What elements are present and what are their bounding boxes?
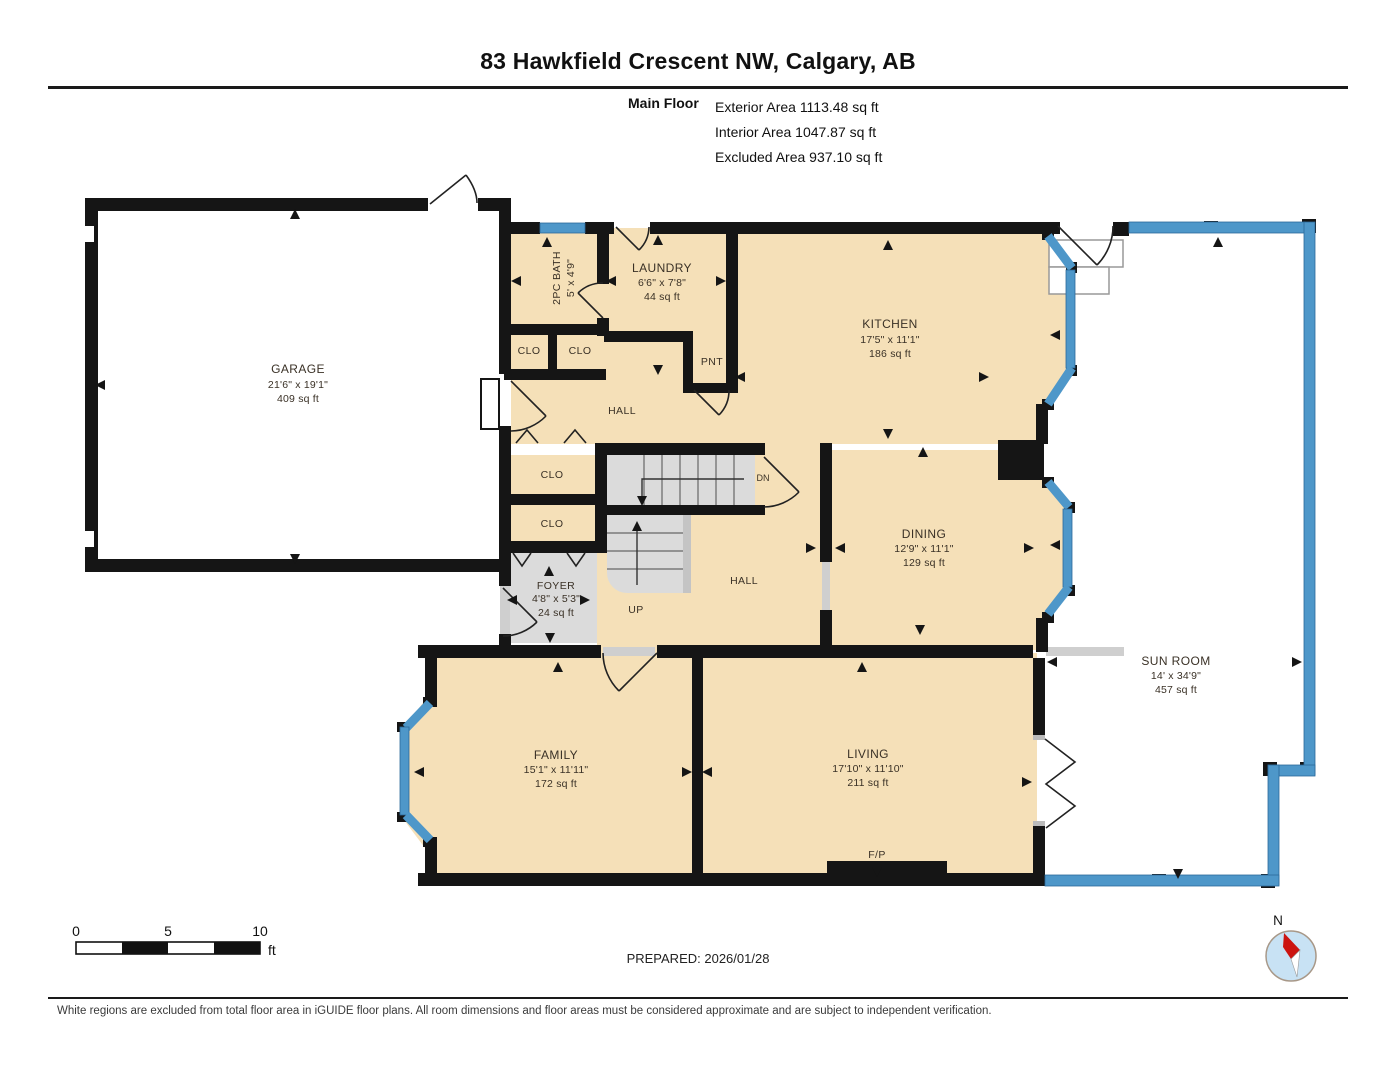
hall-upper-label: HALL <box>608 405 636 417</box>
kitchen-label: KITCHEN 17'5" x 11'1" 186 sq ft <box>860 317 919 360</box>
kitchen-bay-window <box>1066 270 1075 368</box>
sunroom-window-right <box>1304 222 1315 775</box>
sunroom-window-step-v <box>1268 765 1279 885</box>
svg-text:FOYER: FOYER <box>537 580 575 592</box>
svg-text:12'9" x 11'1": 12'9" x 11'1" <box>894 543 953 555</box>
svg-text:172 sq ft: 172 sq ft <box>535 778 577 790</box>
closet3-label: CLO <box>541 469 564 481</box>
garage-label: GARAGE 21'6" x 19'1" 409 sq ft <box>268 362 328 405</box>
svg-text:17'5" x 11'1": 17'5" x 11'1" <box>860 334 919 346</box>
sunroom-window-bottom <box>1045 875 1279 886</box>
dining-label: DINING 12'9" x 11'1" 129 sq ft <box>894 527 953 569</box>
foyer-label: FOYER 4'8" x 5'3" 24 sq ft <box>532 580 580 619</box>
svg-text:186 sq ft: 186 sq ft <box>869 348 911 360</box>
svg-text:DINING: DINING <box>902 527 946 541</box>
floor-plan-svg: GARAGE 21'6" x 19'1" 409 sq ft 2PC BATH … <box>0 0 1396 1080</box>
svg-text:4'8" x 5'3": 4'8" x 5'3" <box>532 593 580 605</box>
svg-text:LAUNDRY: LAUNDRY <box>632 261 692 275</box>
french-doors <box>1045 739 1075 828</box>
pantry-label: PNT <box>701 356 723 368</box>
svg-text:6'6" x 7'8": 6'6" x 7'8" <box>638 277 686 289</box>
svg-text:17'10" x 11'10": 17'10" x 11'10" <box>832 763 904 775</box>
bath-window <box>540 223 585 233</box>
dining-bay-window <box>1063 509 1072 587</box>
scale-tick-5: 5 <box>164 923 172 939</box>
closet1-label: CLO <box>518 345 541 357</box>
svg-text:2PC BATH: 2PC BATH <box>551 251 563 305</box>
fireplace-label: F/P <box>868 849 886 861</box>
prepared-date: PREPARED: 2026/01/28 <box>0 951 1396 966</box>
sunroom-window-top <box>1129 222 1305 233</box>
hall-lower-label: HALL <box>730 575 758 587</box>
compass-north-label: N <box>1273 913 1283 928</box>
svg-text:21'6" x 19'1": 21'6" x 19'1" <box>268 379 328 391</box>
family-bay-window <box>400 727 409 815</box>
svg-text:LIVING: LIVING <box>847 747 889 761</box>
svg-text:211 sq ft: 211 sq ft <box>847 777 888 789</box>
garage-overhead-door <box>430 175 477 204</box>
compass-rose: N <box>1266 913 1316 981</box>
svg-text:14' x 34'9": 14' x 34'9" <box>1151 670 1201 682</box>
svg-text:44 sq ft: 44 sq ft <box>644 291 680 303</box>
stairs-down-label: DN <box>757 473 770 483</box>
floor-plan-page: 83 Hawkfield Crescent NW, Calgary, AB Ma… <box>0 0 1396 1080</box>
svg-text:SUN ROOM: SUN ROOM <box>1141 654 1210 668</box>
deck-step <box>1049 267 1109 294</box>
scale-tick-0: 0 <box>72 923 80 939</box>
scale-tick-10: 10 <box>252 923 268 939</box>
svg-text:15'1" x 11'11": 15'1" x 11'11" <box>524 764 589 776</box>
closet4-label: CLO <box>541 518 564 530</box>
closet2-label: CLO <box>569 345 592 357</box>
stairs-up-label: UP <box>628 604 643 616</box>
footer-disclaimer: White regions are excluded from total fl… <box>57 1005 992 1017</box>
svg-text:5' x 4'9": 5' x 4'9" <box>565 259 577 297</box>
footer-divider <box>48 997 1348 999</box>
svg-text:FAMILY: FAMILY <box>534 748 578 762</box>
svg-text:409 sq ft: 409 sq ft <box>277 393 319 405</box>
sunroom-label: SUN ROOM 14' x 34'9" 457 sq ft <box>1141 654 1210 696</box>
svg-text:129 sq ft: 129 sq ft <box>903 557 945 569</box>
svg-text:KITCHEN: KITCHEN <box>862 317 917 331</box>
svg-text:24 sq ft: 24 sq ft <box>538 607 574 619</box>
svg-text:457 sq ft: 457 sq ft <box>1155 684 1197 696</box>
svg-text:GARAGE: GARAGE <box>271 362 325 376</box>
